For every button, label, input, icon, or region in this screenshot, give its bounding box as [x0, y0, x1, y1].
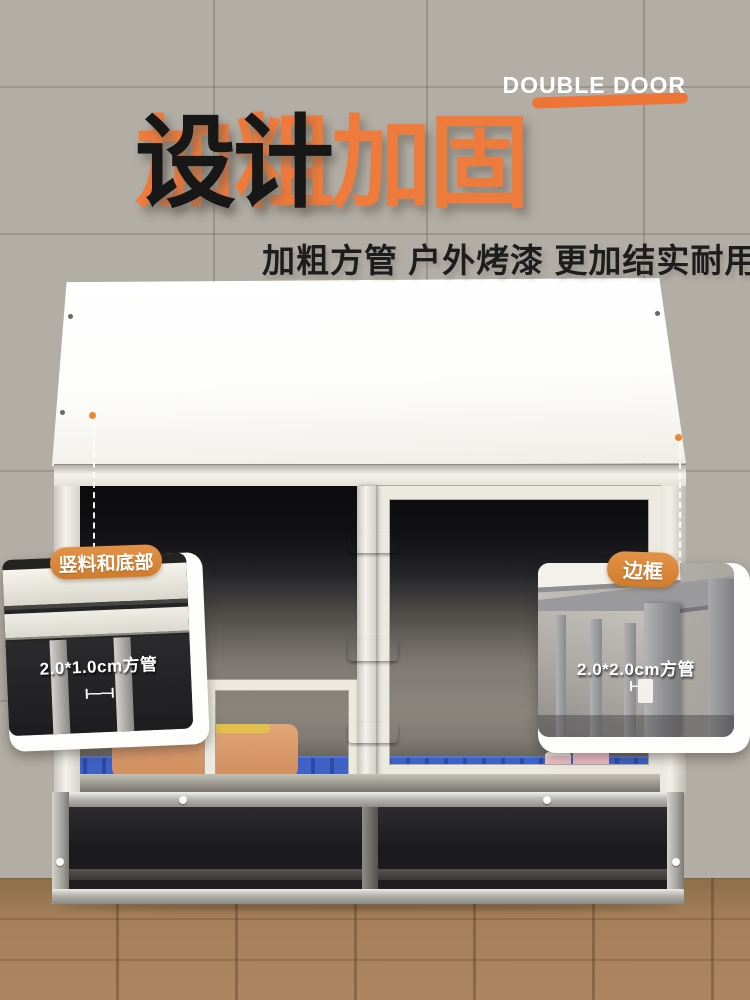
callout-pill-left: 竖料和底部: [49, 544, 162, 580]
cage-top-beam: [54, 464, 686, 486]
stand-front-rail: [52, 792, 684, 807]
inset-photo-left: 2.0*1.0cm方管: [2, 552, 210, 752]
page-subtitle: 加粗方管 户外烤漆 更加结实耐用: [262, 234, 718, 282]
callout-pill-right: 边框: [606, 551, 679, 588]
screw-dot: [655, 311, 660, 316]
door-latch: [348, 722, 398, 743]
screw-dot: [60, 410, 65, 415]
double-door-badge: DOUBLE DOOR: [440, 72, 688, 110]
cage-bottom-rail: [68, 774, 662, 794]
page-title: 加粗加固设计: [135, 106, 721, 232]
screw-dot: [68, 314, 73, 319]
measure-bracket: [630, 681, 646, 691]
cage-roof: [50, 278, 686, 466]
spec-label-right: 2.0*2.0cm方管: [538, 655, 734, 680]
cage-floor-shadow: [60, 903, 676, 910]
door-latch: [348, 640, 398, 661]
inset-right-content: 2.0*2.0cm方管: [538, 563, 734, 737]
title-normal: 设计: [135, 106, 331, 222]
inset-photo-right: 2.0*2.0cm方管: [538, 563, 750, 753]
callout-leader-line: [93, 421, 95, 559]
badge-text: DOUBLE DOOR: [503, 72, 687, 99]
screw-dot: [179, 796, 187, 804]
door-latch: [348, 532, 398, 553]
screw-dot: [56, 858, 64, 866]
inner-gate-bars: [218, 692, 346, 778]
callout-anchor-dot: [89, 412, 96, 419]
stand-left-leg: [52, 792, 69, 904]
product-poster: 2.0*1.0cm方管 2.0*2.0cm方管 竖料和底部 边框 DOUBLE …: [0, 0, 750, 1000]
inset-left-content: 2.0*1.0cm方管: [2, 553, 193, 737]
screw-dot: [672, 858, 680, 866]
callout-leader-line: [679, 443, 681, 567]
stand-right-leg: [667, 792, 684, 904]
stand-bottom-rail: [52, 889, 684, 904]
stand-divider: [362, 807, 378, 889]
callout-pill-left-label: 竖料和底部: [58, 547, 154, 577]
screw-dot: [543, 796, 551, 804]
callout-anchor-dot: [675, 434, 682, 441]
callout-pill-right-label: 边框: [623, 554, 664, 584]
measure-bracket: [86, 688, 114, 699]
inset-right-shadow: [538, 715, 734, 737]
